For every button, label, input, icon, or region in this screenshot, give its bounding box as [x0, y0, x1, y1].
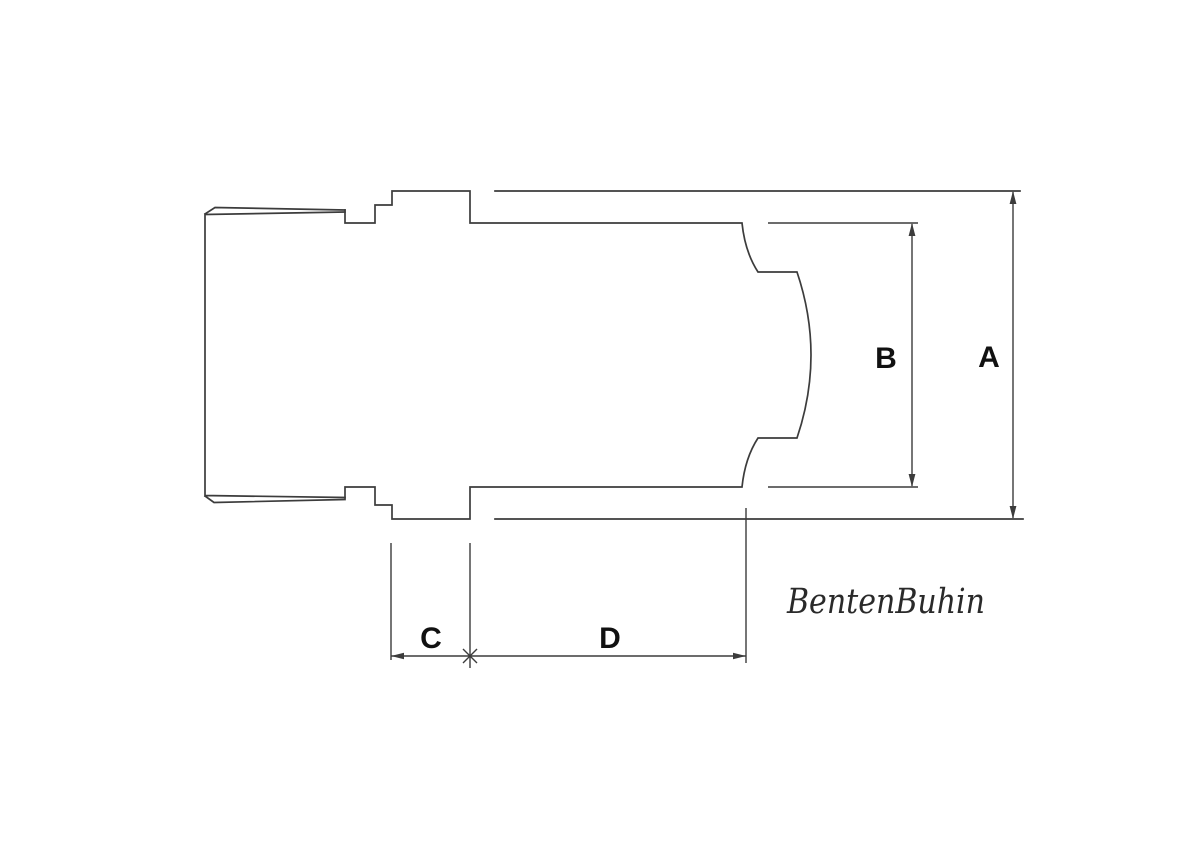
- main-profile: [345, 191, 811, 519]
- dimension-d-arrow-right-icon: [733, 653, 746, 659]
- dimension-d-label: D: [599, 622, 621, 655]
- technical-drawing: A B C D BentenBuhin: [0, 0, 1200, 848]
- dimension-a-group: A: [978, 191, 1016, 519]
- dimension-c-arrow-left-icon: [391, 653, 404, 659]
- drawing-page: A B C D BentenBuhin: [0, 0, 1200, 848]
- dimension-a-arrow-down-icon: [1010, 506, 1017, 519]
- dimension-b-arrow-down-icon: [909, 474, 916, 487]
- thread-end-profile: [205, 208, 345, 503]
- part-outline-group: [205, 191, 1023, 519]
- dimension-b-group: B: [768, 223, 918, 487]
- dimension-a-label: A: [978, 341, 1000, 374]
- dimension-c-label: C: [420, 622, 442, 655]
- dimension-cd-group: C D: [391, 508, 746, 668]
- dimension-a-arrow-up-icon: [1010, 191, 1017, 204]
- watermark-signature: BentenBuhin: [786, 582, 985, 622]
- dimension-b-label: B: [875, 342, 897, 375]
- dimension-b-arrow-up-icon: [909, 223, 916, 236]
